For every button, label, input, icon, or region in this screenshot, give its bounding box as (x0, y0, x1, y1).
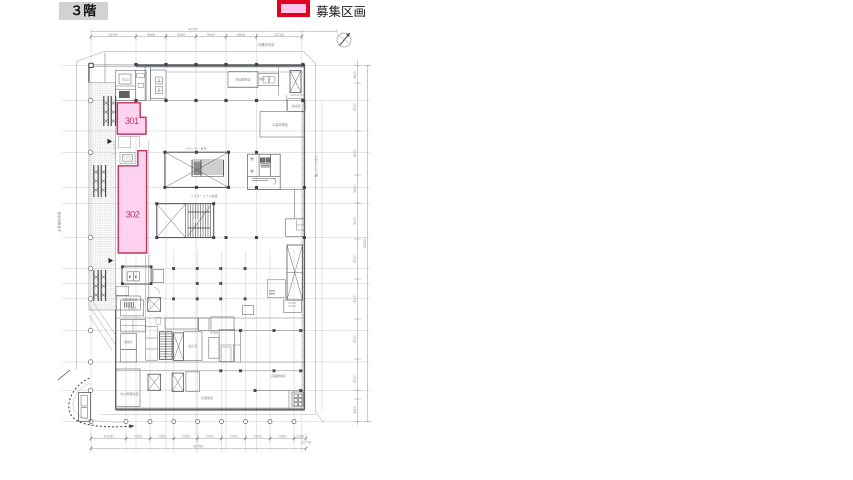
svg-text:13750: 13750 (274, 33, 284, 37)
svg-text:店舗専有部: 店舗専有部 (258, 42, 276, 47)
svg-text:7200: 7200 (254, 435, 262, 439)
svg-text:スカイツリー側: スカイツリー側 (314, 155, 319, 177)
svg-text:9000: 9000 (353, 335, 357, 343)
svg-text:4500: 4500 (353, 71, 357, 79)
svg-text:お客様駐車場: お客様駐車場 (57, 211, 62, 232)
svg-text:エスカレーター: エスカレーター (113, 140, 117, 159)
svg-text:7200: 7200 (230, 435, 238, 439)
svg-text:ベビーカー置場: ベビーカー置場 (185, 146, 206, 151)
svg-text:2150: 2150 (296, 435, 304, 439)
svg-text:7200: 7200 (158, 435, 166, 439)
svg-text:防災C: 防災C (122, 78, 130, 82)
svg-text:会議事務室: 会議事務室 (235, 77, 250, 82)
svg-text:防災備蓄倉庫: 防災備蓄倉庫 (120, 391, 138, 396)
svg-text:41750: 41750 (193, 445, 203, 449)
svg-text:7300: 7300 (278, 435, 286, 439)
svg-text:管理室: 管理室 (128, 306, 137, 310)
svg-text:5600: 5600 (353, 185, 357, 193)
svg-text:301: 301 (125, 116, 139, 126)
svg-text:電気機械室: 電気機械室 (123, 298, 137, 302)
svg-text:4500: 4500 (353, 406, 357, 414)
svg-text:7200: 7200 (206, 435, 214, 439)
svg-text:9000: 9000 (353, 217, 357, 225)
svg-text:7200: 7200 (134, 435, 142, 439)
svg-text:143500: 143500 (363, 237, 367, 248)
svg-text:9000: 9000 (353, 103, 357, 111)
svg-text:9000: 9000 (353, 295, 357, 303)
svg-text:9000: 9000 (177, 33, 185, 37)
svg-text:公募事務室: 公募事務室 (272, 122, 288, 127)
svg-text:バスターミナル連絡: バスターミナル連絡 (190, 193, 217, 198)
svg-text:機械: 機械 (259, 77, 265, 81)
svg-text:9000: 9000 (147, 33, 155, 37)
svg-text:階段: 階段 (193, 218, 199, 223)
svg-text:31.7M: 31.7M (301, 441, 311, 445)
svg-text:管理諸室: 管理諸室 (201, 395, 213, 400)
svg-text:9000: 9000 (353, 255, 357, 263)
svg-text:7200: 7200 (182, 435, 190, 439)
svg-text:管理室: 管理室 (209, 329, 218, 334)
svg-text:41750: 41750 (188, 28, 198, 32)
svg-text:10150: 10150 (104, 435, 114, 439)
svg-text:302: 302 (126, 210, 140, 220)
svg-text:9000: 9000 (353, 149, 357, 157)
svg-text:機械室: 機械室 (124, 340, 133, 344)
svg-text:9000: 9000 (353, 375, 357, 383)
svg-text:9000: 9000 (207, 33, 215, 37)
svg-text:電気室: 電気室 (188, 343, 197, 348)
svg-text:会議室: 会議室 (291, 103, 300, 108)
svg-text:13750: 13750 (108, 33, 118, 37)
svg-text:9000: 9000 (237, 33, 245, 37)
svg-text:店舗機械室: 店舗機械室 (271, 373, 286, 378)
